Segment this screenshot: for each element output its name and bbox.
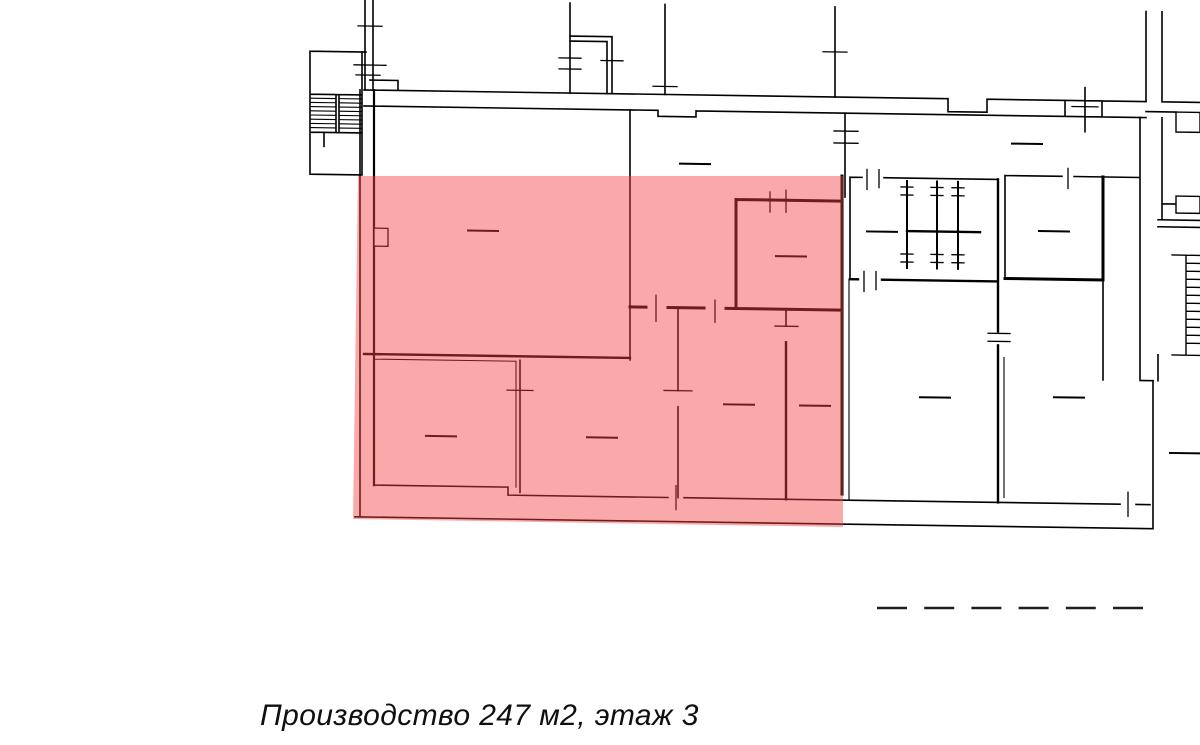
floor-plan-canvas xyxy=(0,0,1200,745)
ladder-icon xyxy=(1172,255,1200,355)
highlight-region xyxy=(353,176,843,527)
radiator-box-top xyxy=(1176,112,1200,132)
stairwell xyxy=(310,51,366,175)
shaft-box xyxy=(570,36,612,94)
toilet-stalls xyxy=(907,181,958,269)
plan-caption-text: Производство 247 м2, этаж 3 xyxy=(260,699,699,732)
floor-plan-page: Производство 247 м2, этаж 3 xyxy=(0,0,1200,745)
corridor-walls xyxy=(364,77,1146,133)
plan-caption: Производство 247 м2, этаж 3 xyxy=(260,699,699,733)
radiator-box-middle xyxy=(1176,196,1200,213)
